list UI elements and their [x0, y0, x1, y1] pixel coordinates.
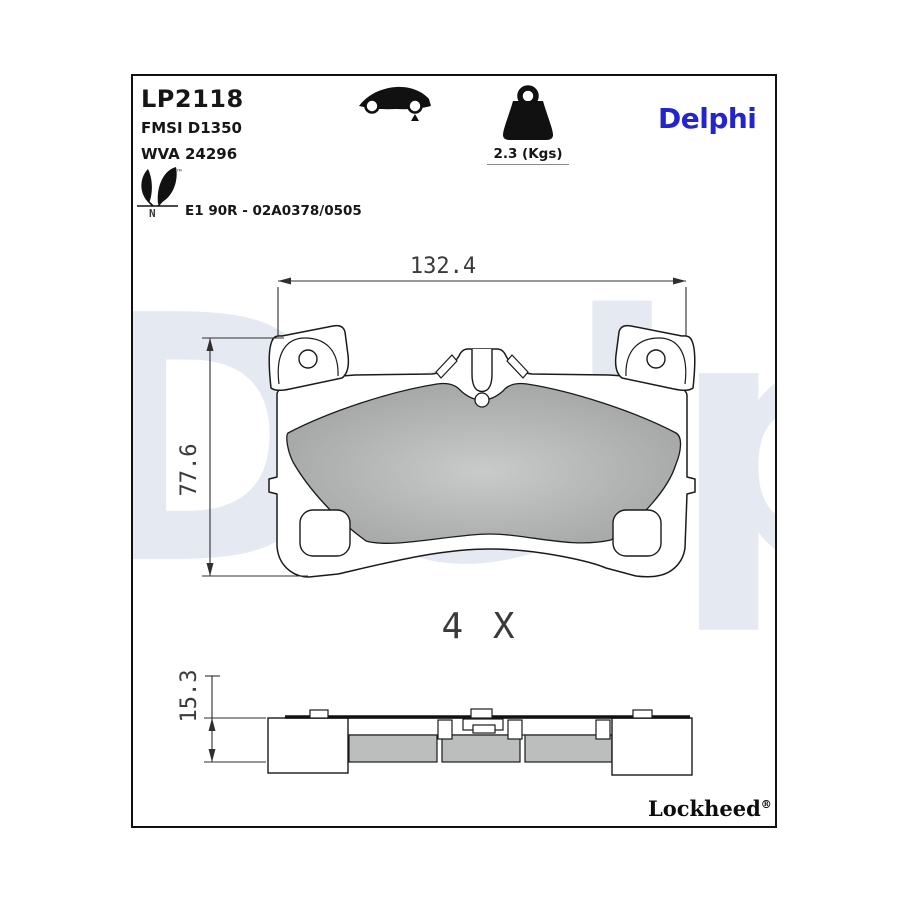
- side-notch-3: [596, 720, 610, 739]
- right-ear-hole: [647, 350, 665, 368]
- left-ear-hole: [299, 350, 317, 368]
- center-keyhole: [475, 393, 489, 407]
- side-tab-right: [633, 710, 652, 718]
- center-notch: [472, 349, 492, 392]
- side-tab-left: [310, 710, 328, 718]
- arrow-left: [278, 278, 291, 285]
- arrow-bottom: [207, 563, 214, 576]
- width-dimension-label: 132.4: [410, 254, 476, 279]
- side-friction-segment-1: [349, 735, 437, 762]
- arrow-bottom: [209, 749, 216, 762]
- side-notch-1: [438, 720, 452, 739]
- thickness-dimension-label: 15.3: [177, 670, 202, 723]
- side-right-ear-block: [612, 718, 692, 775]
- side-tab-center: [471, 709, 492, 718]
- arrow-top: [209, 718, 216, 731]
- pad-side-view: [268, 709, 692, 775]
- thickness-dimension: [204, 676, 266, 762]
- side-center-box-inner: [473, 725, 495, 733]
- arrow-right: [673, 278, 686, 285]
- quantity-label: 4 X: [441, 606, 518, 647]
- technical-drawing: 132.4 77.6 4 X 15.3: [0, 0, 900, 900]
- side-left-ear-block: [268, 718, 348, 773]
- pad-front-view: [269, 326, 695, 577]
- lower-right-cutout: [613, 510, 661, 556]
- lower-left-cutout: [300, 510, 350, 556]
- height-dimension-label: 77.6: [177, 444, 202, 497]
- side-notch-2: [508, 720, 522, 739]
- arrow-top: [207, 338, 214, 351]
